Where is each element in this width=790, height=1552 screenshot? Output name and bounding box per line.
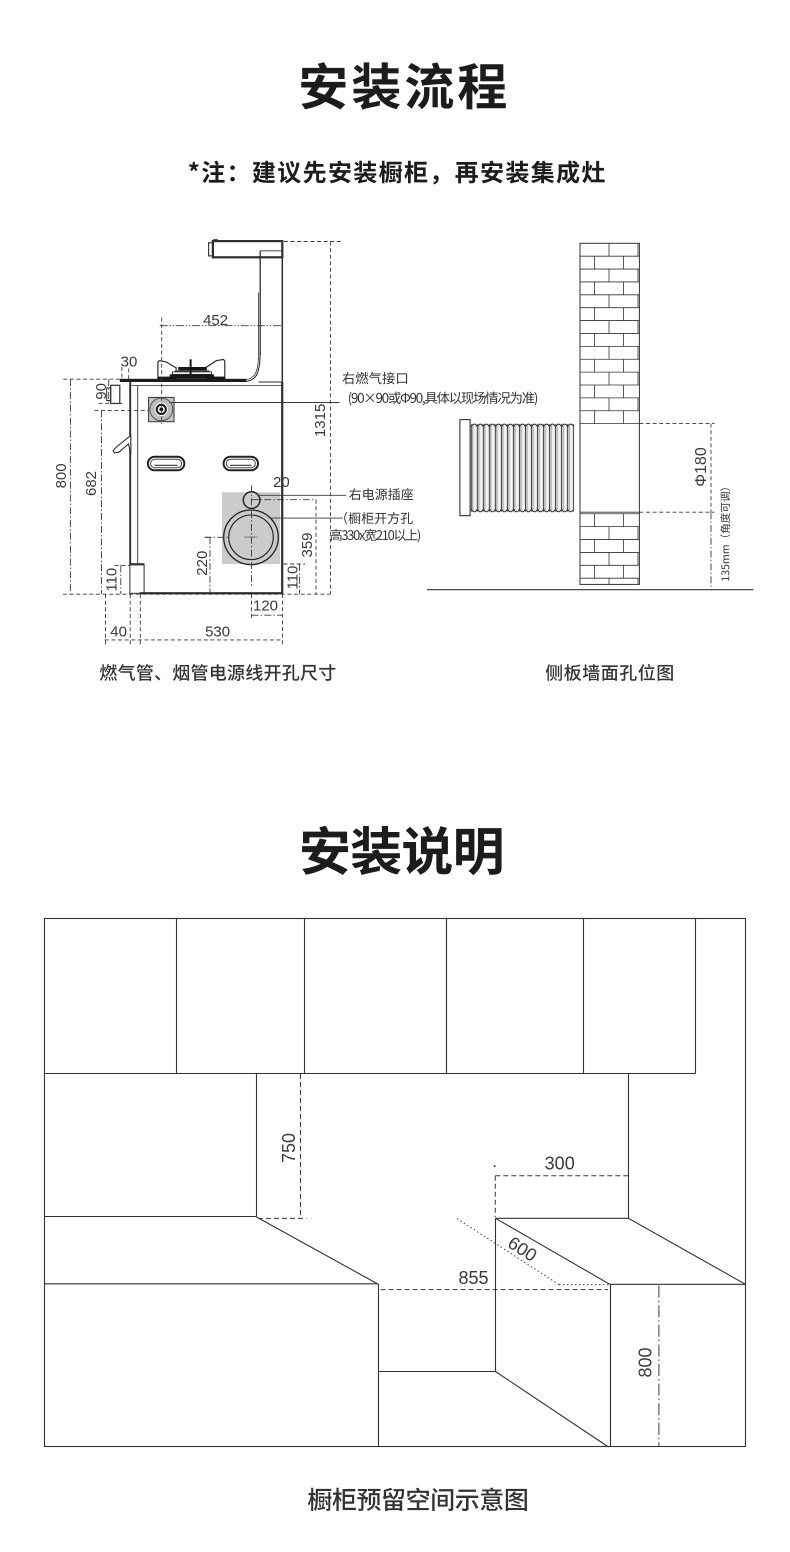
svg-text:682: 682 xyxy=(83,471,100,496)
svg-text:110: 110 xyxy=(284,566,301,590)
svg-text:452: 452 xyxy=(203,312,228,329)
svg-text:300: 300 xyxy=(545,1153,575,1173)
svg-text:40: 40 xyxy=(110,624,127,641)
svg-text:855: 855 xyxy=(458,1268,488,1288)
svg-text:30: 30 xyxy=(121,353,138,370)
svg-text:800: 800 xyxy=(636,1347,656,1377)
svg-text:600: 600 xyxy=(504,1233,540,1266)
svg-text:120: 120 xyxy=(253,598,278,615)
svg-text:800: 800 xyxy=(53,463,70,488)
svg-text:359: 359 xyxy=(299,532,316,557)
svg-text:530: 530 xyxy=(205,623,230,640)
svg-text:220: 220 xyxy=(194,551,211,576)
svg-text:20: 20 xyxy=(273,474,290,491)
svg-text:110: 110 xyxy=(104,568,121,592)
svg-text:Φ180: Φ180 xyxy=(693,447,710,487)
svg-text:1315: 1315 xyxy=(312,404,329,437)
svg-text:90: 90 xyxy=(93,383,110,400)
svg-text:750: 750 xyxy=(279,1133,299,1163)
